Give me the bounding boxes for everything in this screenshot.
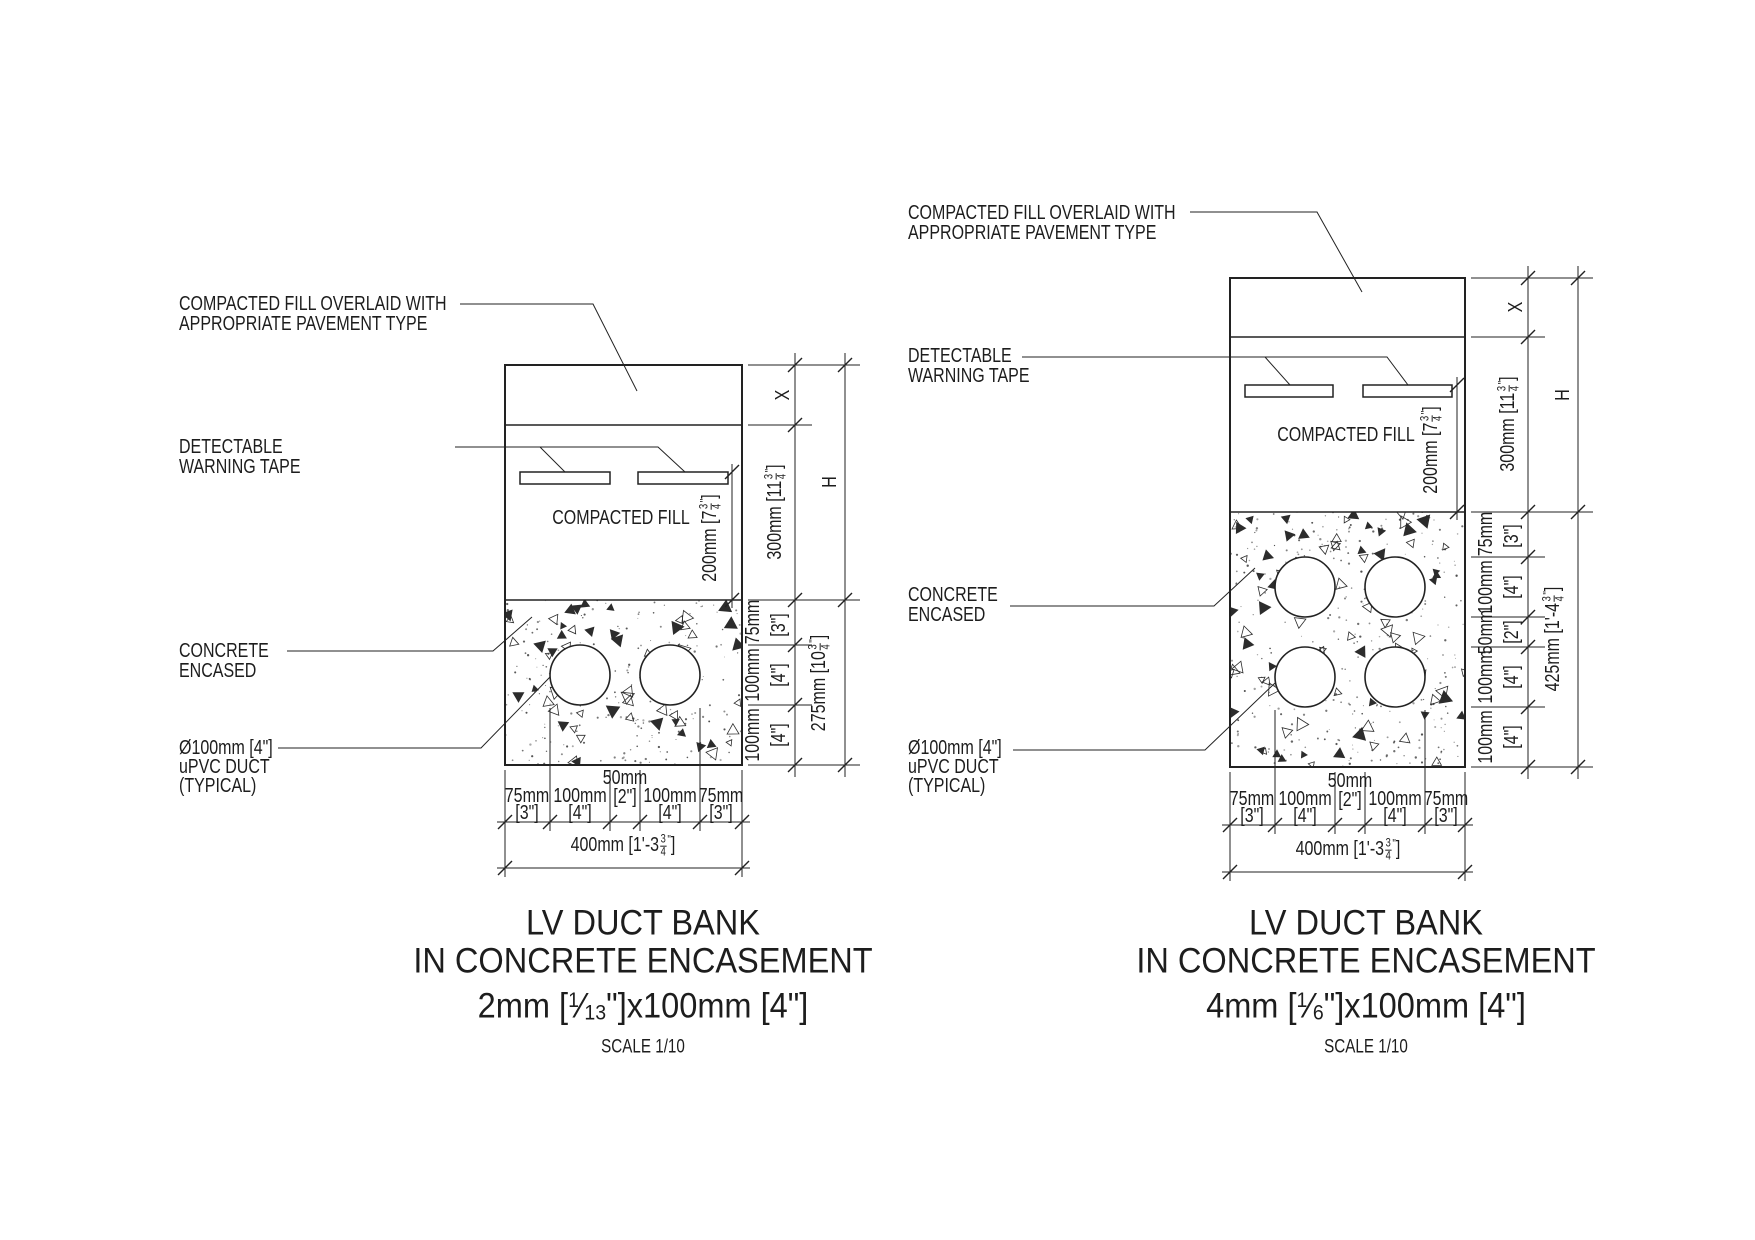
d1-callouts-duct-2-8: (TYPICAL) bbox=[179, 776, 256, 796]
d1-callouts-pavement-1-1: APPROPRIATE PAVEMENT TYPE bbox=[179, 314, 427, 334]
d1-dims-tape_depth-10: 200mm [734"] bbox=[699, 494, 724, 581]
d2-dims-duct-55: 100mm bbox=[1476, 650, 1496, 703]
d2-dims-duct-57: 100mm bbox=[1476, 710, 1496, 763]
d2-callouts-concrete-1-41: ENCASED bbox=[908, 605, 985, 625]
d1-dims-gap-21: 50mm bbox=[603, 768, 647, 788]
d1-callouts-compacted_fill-9: COMPACTED FILL bbox=[552, 508, 690, 528]
d2-dims-x-47: X bbox=[1506, 302, 1526, 313]
d1-callouts-pavement-0-0: COMPACTED FILL OVERLAID WITH bbox=[179, 294, 447, 314]
d2-dims-edge_in-67: [3"] bbox=[1240, 806, 1263, 826]
drawing-sheet: COMPACTED FILL OVERLAID WITHAPPROPRIATE … bbox=[0, 0, 1755, 1240]
d1-dims-edge_in-14: [3"] bbox=[769, 613, 789, 636]
d2-dims-gap-61: 50mm bbox=[1328, 771, 1372, 791]
d1-dims-edge_in-27: [3"] bbox=[515, 803, 538, 823]
d2-callouts-warning_tape-1-39: WARNING TAPE bbox=[908, 366, 1030, 386]
d2-callouts-duct-0-42: Ø100mm [4"] bbox=[908, 738, 1002, 758]
d2-dims-duct_in-58: [4"] bbox=[1502, 725, 1522, 748]
d1-dims-h-19: H bbox=[820, 476, 840, 488]
d2-title-scale-75: SCALE 1/10 bbox=[1324, 1038, 1408, 1057]
d1-callouts-warning_tape-0-2: DETECTABLE bbox=[179, 437, 283, 457]
d2-dims-duct_in-56: [4"] bbox=[1502, 665, 1522, 688]
d2-dims-tape_depth-46: 200mm [734"] bbox=[1420, 406, 1445, 493]
d2-callouts-warning_tape-0-38: DETECTABLE bbox=[908, 346, 1012, 366]
d2-title-line2-73: IN CONCRETE ENCASEMENT bbox=[1136, 944, 1595, 979]
d2-title-line1-72: LV DUCT BANK bbox=[1249, 906, 1483, 941]
d2-dims-duct-51: 100mm bbox=[1476, 560, 1496, 613]
d1-dims-duct_in-18: [4"] bbox=[769, 723, 789, 746]
d2-dims-edge-49: 75mm bbox=[1476, 512, 1496, 556]
d1-dims-duct-15: 100mm bbox=[743, 648, 763, 701]
d2-callouts-concrete-0-40: CONCRETE bbox=[908, 585, 998, 605]
d1-callouts-duct-1-7: uPVC DUCT bbox=[179, 757, 270, 777]
d1-dims-concrete_depth-20: 275mm [1034"] bbox=[808, 635, 833, 731]
d1-callouts-concrete-1-5: ENCASED bbox=[179, 661, 256, 681]
d1-callouts-duct-0-6: Ø100mm [4"] bbox=[179, 738, 273, 758]
d2-dims-h-59: H bbox=[1553, 389, 1573, 401]
d2-dims-edge_in-70: [3"] bbox=[1434, 806, 1457, 826]
d1-title-scale-35: SCALE 1/10 bbox=[601, 1038, 685, 1057]
d1-title-line1-32: LV DUCT BANK bbox=[526, 906, 760, 941]
d1-dims-duct_in-28: [4"] bbox=[568, 803, 591, 823]
d2-dims-fill_depth-48: 300mm [1134"] bbox=[1497, 376, 1522, 471]
d2-dims-gap-53: 50mm bbox=[1476, 610, 1496, 654]
d2-dims-edge_in-50: [3"] bbox=[1502, 524, 1522, 547]
d1-dims-gap_in-24: [2"] bbox=[613, 787, 636, 807]
d1-dims-x-11: X bbox=[773, 390, 793, 401]
d2-dims-gap_in-54: [2"] bbox=[1502, 620, 1522, 643]
d2-callouts-pavement-0-36: COMPACTED FILL OVERLAID WITH bbox=[908, 203, 1176, 223]
d1-title-line2-33: IN CONCRETE ENCASEMENT bbox=[413, 944, 872, 979]
d1-dims-duct-17: 100mm bbox=[743, 708, 763, 761]
d1-title-line3-34: 2mm [1⁄13"]x100mm [4"] bbox=[478, 989, 809, 1024]
d2-dims-concrete_depth-60: 425mm [1'-434"] bbox=[1542, 587, 1567, 692]
d2-title-line3-74: 4mm [1⁄6"]x100mm [4"] bbox=[1206, 989, 1526, 1024]
d2-dims-duct_in-68: [4"] bbox=[1293, 806, 1316, 826]
d2-dims-width-71: 400mm [1'-334"] bbox=[1296, 838, 1401, 863]
d2-dims-duct_in-69: [4"] bbox=[1383, 806, 1406, 826]
d2-dims-duct_in-52: [4"] bbox=[1502, 575, 1522, 598]
d1-dims-duct_in-29: [4"] bbox=[658, 803, 681, 823]
d2-callouts-pavement-1-37: APPROPRIATE PAVEMENT TYPE bbox=[908, 223, 1156, 243]
d2-callouts-duct-2-44: (TYPICAL) bbox=[908, 776, 985, 796]
drawing-labels: COMPACTED FILL OVERLAID WITHAPPROPRIATE … bbox=[0, 0, 1755, 1240]
d1-dims-duct_in-16: [4"] bbox=[769, 663, 789, 686]
d2-dims-gap_in-64: [2"] bbox=[1338, 790, 1361, 810]
d1-dims-edge_in-30: [3"] bbox=[709, 803, 732, 823]
d1-callouts-concrete-0-4: CONCRETE bbox=[179, 641, 269, 661]
d1-dims-edge-13: 75mm bbox=[743, 600, 763, 644]
d2-callouts-compacted_fill-45: COMPACTED FILL bbox=[1277, 425, 1415, 445]
d2-callouts-duct-1-43: uPVC DUCT bbox=[908, 757, 999, 777]
d1-dims-fill_depth-12: 300mm [1134"] bbox=[764, 464, 789, 559]
d1-dims-width-31: 400mm [1'-334"] bbox=[571, 834, 676, 859]
d1-callouts-warning_tape-1-3: WARNING TAPE bbox=[179, 457, 301, 477]
